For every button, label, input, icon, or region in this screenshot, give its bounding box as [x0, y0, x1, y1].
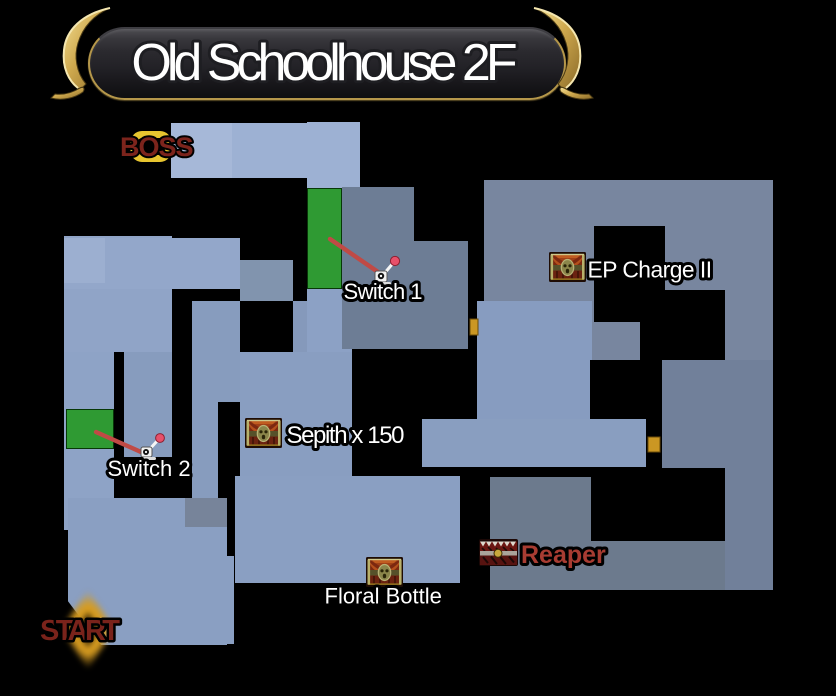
svg-text:Old Schoolhouse 2F: Old Schoolhouse 2F — [131, 34, 515, 92]
svg-text:Sepith x 150: Sepith x 150 — [287, 422, 405, 449]
svg-text:Switch 1: Switch 1 — [344, 279, 423, 304]
svg-text:Switch 2: Switch 2 — [108, 456, 191, 481]
svg-text:Reaper: Reaper — [521, 541, 606, 569]
svg-text:START: START — [40, 615, 120, 647]
svg-text:BOSS: BOSS — [120, 132, 193, 162]
svg-text:Floral Bottle: Floral Bottle — [325, 584, 442, 609]
svg-text:EP Charge II: EP Charge II — [588, 257, 712, 283]
